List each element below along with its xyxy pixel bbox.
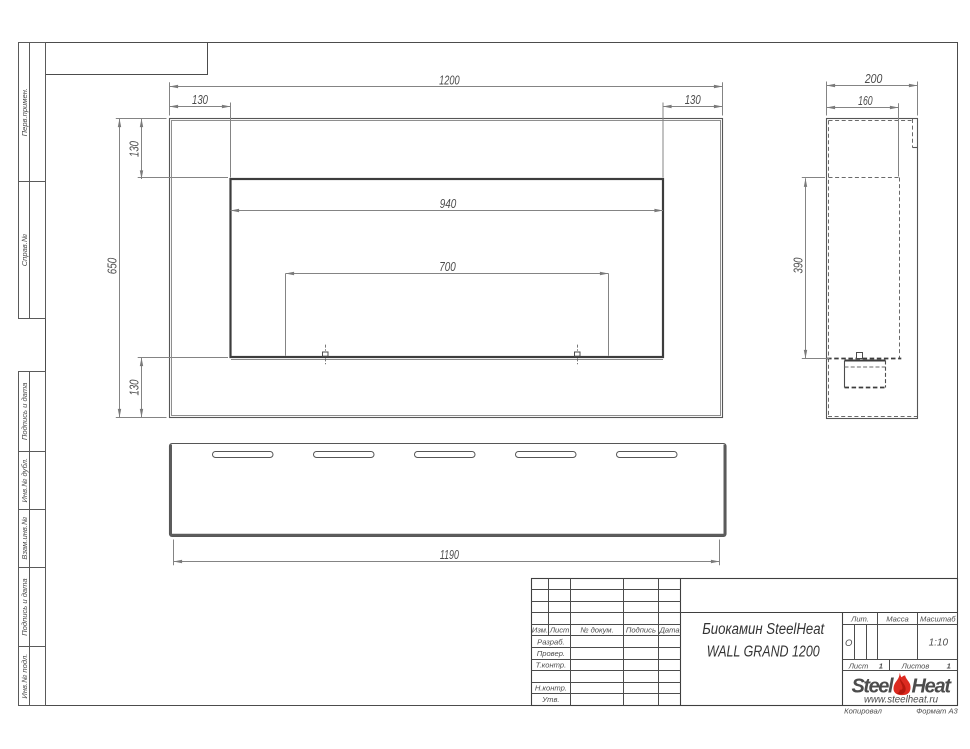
svg-text:Подпись и дата: Подпись и дата — [20, 383, 29, 440]
svg-text:700: 700 — [439, 260, 456, 274]
svg-text:390: 390 — [792, 257, 806, 273]
svg-text:Подпись: Подпись — [626, 625, 656, 634]
svg-text:Копировал: Копировал — [844, 707, 882, 716]
svg-text:160: 160 — [858, 94, 873, 108]
svg-text:№ докум.: № докум. — [580, 625, 613, 634]
svg-text:Дата: Дата — [659, 625, 680, 634]
svg-text:Лит.: Лит. — [850, 614, 869, 623]
svg-text:Подпись и дата: Подпись и дата — [20, 578, 29, 635]
svg-text:130: 130 — [128, 141, 142, 157]
svg-text:Масштаб: Масштаб — [920, 614, 956, 623]
svg-text:200: 200 — [864, 72, 882, 86]
svg-text:Лист: Лист — [848, 661, 869, 670]
svg-text:Справ.№: Справ.№ — [20, 234, 29, 266]
svg-text:Листов: Листов — [901, 661, 930, 670]
svg-text:WALL GRAND 1200: WALL GRAND 1200 — [707, 643, 820, 660]
svg-text:Т.контр.: Т.контр. — [536, 660, 567, 669]
svg-text:Н.контр.: Н.контр. — [535, 684, 567, 693]
svg-text:130: 130 — [685, 93, 701, 107]
svg-text:1: 1 — [947, 661, 951, 670]
svg-text:650: 650 — [106, 258, 120, 275]
svg-text:Утв.: Утв. — [541, 695, 559, 704]
svg-text:1: 1 — [879, 661, 883, 670]
svg-text:Инв.№ подл.: Инв.№ подл. — [20, 654, 29, 699]
svg-text:О: О — [845, 638, 853, 649]
svg-text:Лист: Лист — [549, 625, 570, 634]
svg-text:Взам.инв.№: Взам.инв.№ — [20, 517, 29, 560]
svg-text:www.steelheat.ru: www.steelheat.ru — [864, 695, 938, 706]
svg-text:1190: 1190 — [440, 548, 459, 562]
svg-text:Изм.: Изм. — [532, 625, 548, 634]
svg-text:Биокамин SteelHeat: Биокамин SteelHeat — [702, 621, 825, 638]
svg-text:Разраб.: Разраб. — [537, 637, 564, 646]
svg-text:Инв.№ дубл.: Инв.№ дубл. — [20, 458, 29, 503]
svg-text:130: 130 — [128, 379, 142, 395]
svg-text:1:10: 1:10 — [929, 637, 949, 648]
svg-text:Провер.: Провер. — [537, 649, 565, 658]
svg-text:Формат А3: Формат А3 — [916, 707, 958, 716]
svg-text:Масса: Масса — [886, 614, 908, 623]
svg-text:130: 130 — [192, 93, 208, 107]
svg-text:1200: 1200 — [439, 73, 460, 87]
svg-text:Перв.примен.: Перв.примен. — [20, 88, 29, 136]
svg-text:940: 940 — [440, 197, 457, 211]
